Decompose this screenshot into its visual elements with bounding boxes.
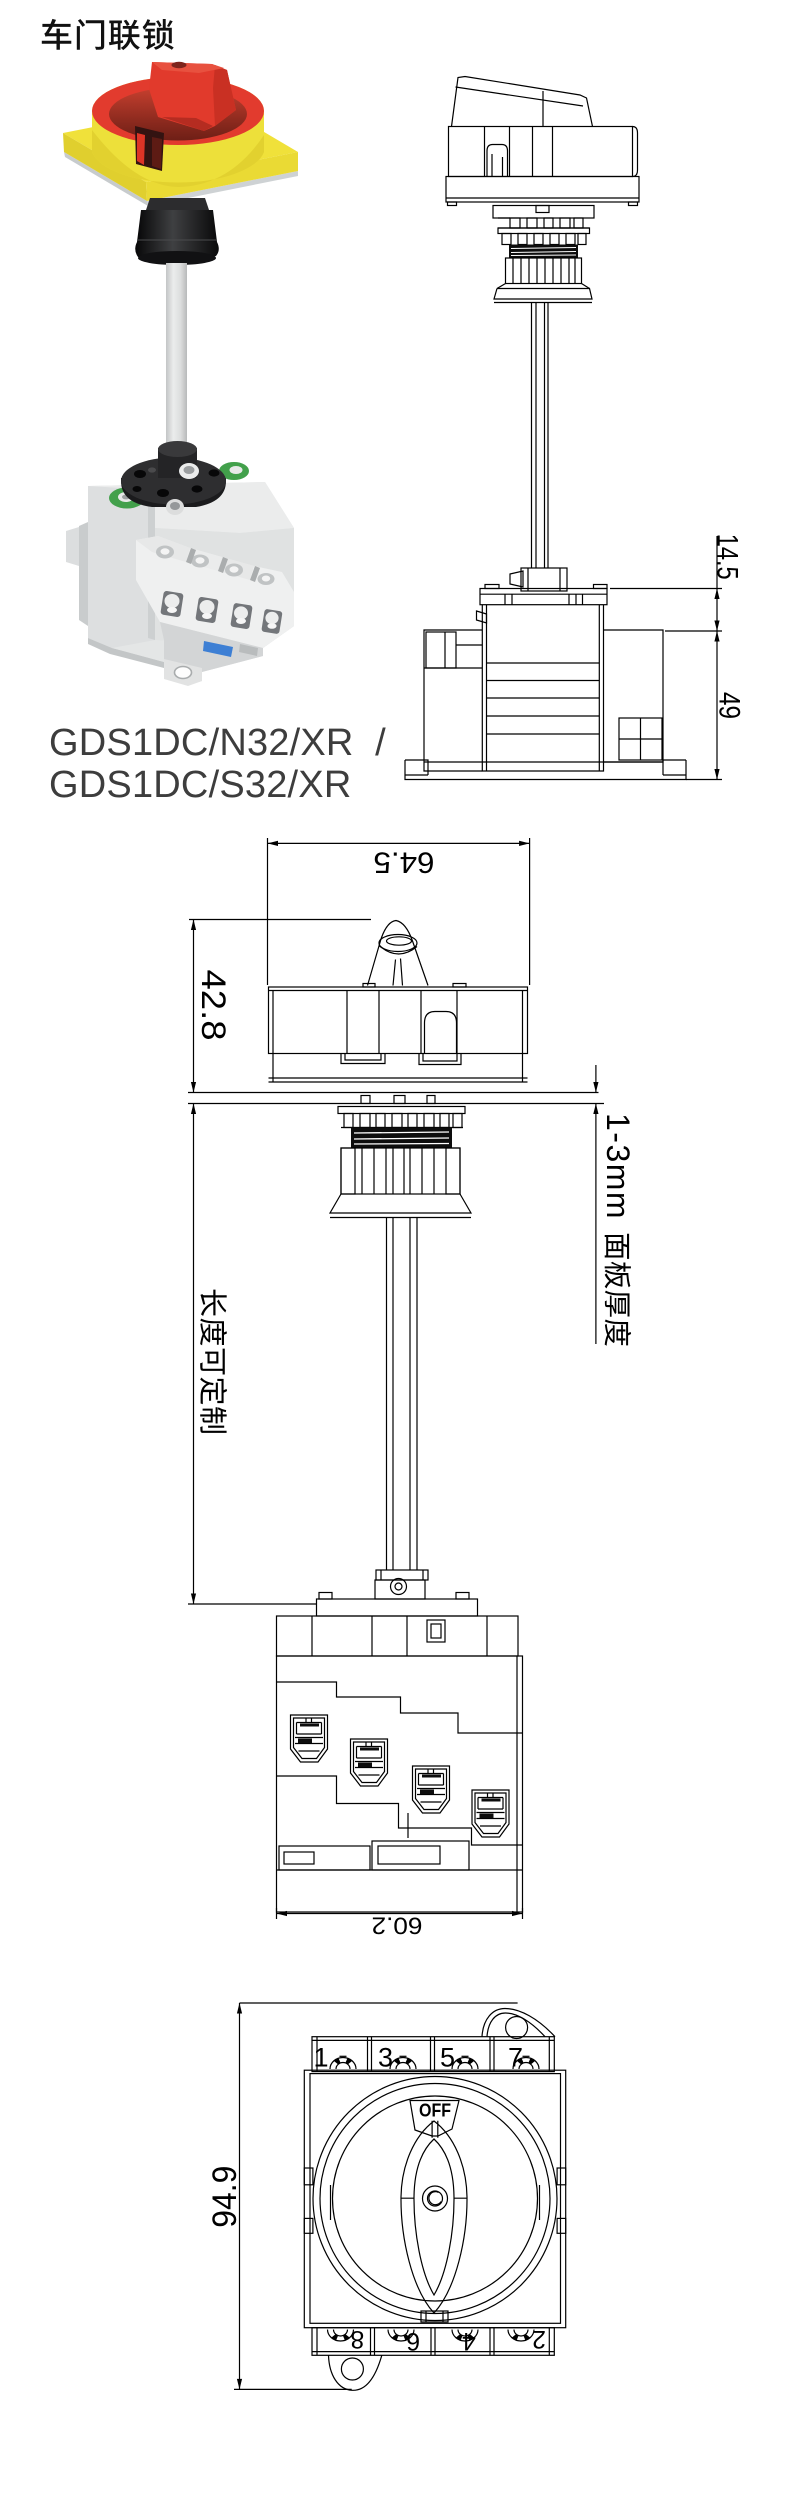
svg-text:49: 49 — [713, 692, 746, 719]
svg-text:1: 1 — [314, 2043, 329, 2073]
svg-text:14.5: 14.5 — [711, 534, 744, 580]
svg-text:2: 2 — [532, 2325, 546, 2353]
svg-text:5: 5 — [440, 2043, 455, 2073]
svg-text:94.9: 94.9 — [206, 2166, 244, 2228]
svg-text:42.8: 42.8 — [194, 970, 232, 1041]
svg-text:OFF: OFF — [419, 2101, 451, 2121]
svg-text:8: 8 — [350, 2325, 364, 2353]
svg-text:3: 3 — [378, 2043, 393, 2073]
svg-text:1-3mm: 1-3mm — [600, 1113, 636, 1220]
svg-text:7: 7 — [508, 2043, 523, 2073]
svg-text:60.2: 60.2 — [372, 1912, 423, 1939]
svg-text:64.5: 64.5 — [374, 845, 435, 878]
